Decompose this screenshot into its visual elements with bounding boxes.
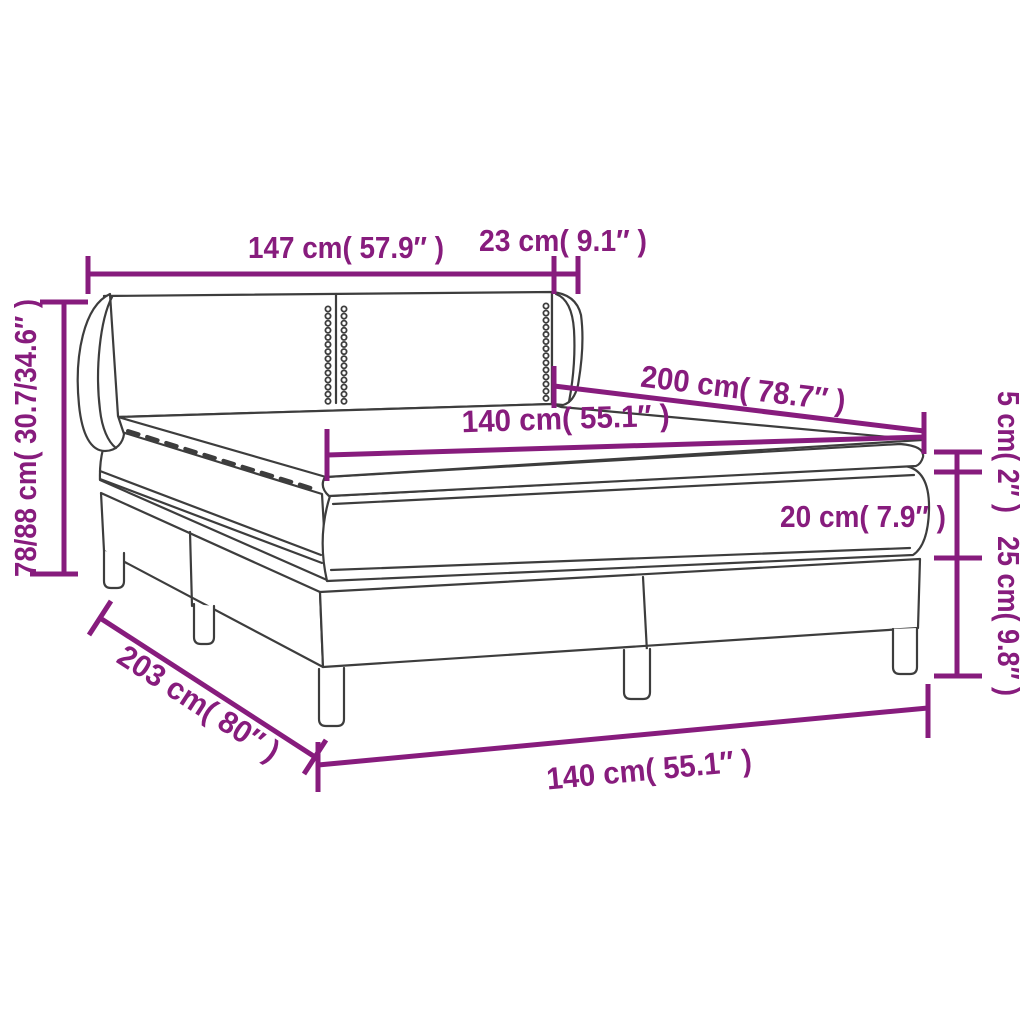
mattress-height-label: 20 cm( 7.9″ ) — [780, 499, 946, 534]
headboard-width-label: 147 cm( 57.9″ ) — [248, 230, 444, 265]
bed-leg — [624, 649, 650, 699]
bed-leg — [194, 604, 214, 644]
frame-length-label: 203 cm( 80″ ) — [111, 638, 286, 769]
topper-height-label: 5 cm( 2″ ) — [991, 391, 1024, 513]
box-height-label: 25 cm( 9.8″ ) — [991, 536, 1024, 696]
dim-line-height-stack — [934, 452, 982, 676]
bed-leg — [104, 551, 124, 588]
frame-width-label: 140 cm( 55.1″ ) — [545, 743, 753, 797]
bed-leg — [319, 668, 344, 726]
bed-dimension-diagram: 147 cm( 57.9″ ) 23 cm( 9.1″ ) 78/88 cm( … — [0, 0, 1024, 1024]
diagram-canvas: 147 cm( 57.9″ ) 23 cm( 9.1″ ) 78/88 cm( … — [0, 0, 1024, 1024]
overall-height-label: 78/88 cm( 30.7/34.6″ ) — [8, 299, 43, 577]
headboard-side-depth-label: 23 cm( 9.1″ ) — [479, 223, 647, 258]
mattress-width-label: 140 cm( 55.1″ ) — [461, 398, 670, 440]
bed-leg — [893, 628, 917, 674]
